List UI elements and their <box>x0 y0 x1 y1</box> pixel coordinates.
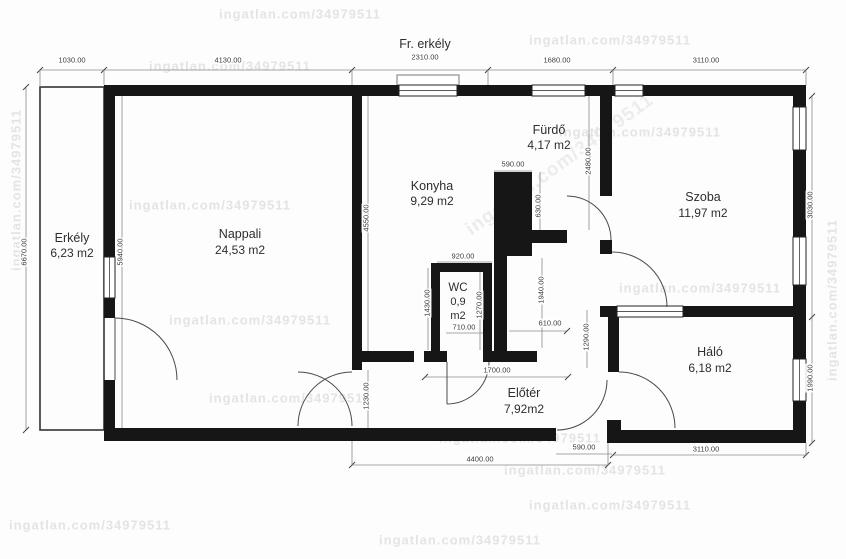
walls <box>104 85 806 443</box>
room-label-nappali: Nappali <box>219 227 261 241</box>
dim-bottom-3110: 3110.00 <box>692 445 721 454</box>
room-label-erkely: Erkély <box>55 231 90 245</box>
dim-mid-1940: 1940.00 <box>537 275 546 304</box>
dim-mid-610: 610.00 <box>538 319 563 328</box>
dim-furdo-590: 590.00 <box>501 160 526 169</box>
dim-mid-1290: 1290.00 <box>582 322 591 351</box>
floorplan-canvas <box>0 0 846 559</box>
dim-bottom-4400: 4400.00 <box>465 455 494 464</box>
room-label-wc: WC <box>448 281 467 295</box>
room-area-halo: 6,18 m2 <box>688 361 731 375</box>
dim-wc-1270: 1270.00 <box>475 290 484 319</box>
room-area-furdo: 4,17 m2 <box>527 138 570 152</box>
room-label-szoba: Szoba <box>685 190 720 204</box>
dimension-lines <box>23 67 815 468</box>
dim-top-1680: 1680.00 <box>542 56 571 65</box>
dim-eloter-1700: 1700.00 <box>482 366 511 375</box>
dim-entry-590: 590.00 <box>572 443 597 452</box>
dim-top-3110: 3110.00 <box>692 56 721 65</box>
dim-konyha-4550: 4550.00 <box>362 203 371 232</box>
dim-wc-920: 920.00 <box>451 252 476 261</box>
room-label-furdo: Fürdő <box>533 123 566 137</box>
room-label-fr-erkely: Fr. erkély <box>399 37 450 51</box>
dim-wc-710: 710.00 <box>452 323 477 332</box>
dim-right-3030: 3030.00 <box>806 190 815 219</box>
dim-top-1030: 1030.00 <box>57 56 86 65</box>
room-area-nappali: 24,53 m2 <box>215 243 265 257</box>
room-label-halo: Háló <box>697 345 723 359</box>
dim-furdo-630: 630.00 <box>534 194 543 219</box>
room-label-konyha: Konyha <box>411 179 453 193</box>
room-label-eloter: Előtér <box>508 386 541 400</box>
room-area-erkely: 6,23 m2 <box>50 246 93 260</box>
room-area-wc-2: m2 <box>450 309 465 323</box>
dim-top-2310: 2310.00 <box>410 53 439 62</box>
dim-furdo-2480: 2480.00 <box>584 146 593 175</box>
dim-right-1990: 1990.00 <box>806 363 815 392</box>
room-area-eloter: 7,92m2 <box>504 402 544 416</box>
dim-eloter-1230: 1230.00 <box>362 381 371 410</box>
dim-left-5940: 5940.00 <box>116 237 125 266</box>
room-area-szoba: 11,97 m2 <box>678 206 727 220</box>
dim-left-6670: 6670.00 <box>20 237 29 266</box>
dim-top-4130: 4130.00 <box>213 56 242 65</box>
dim-wc-1430: 1430.00 <box>423 288 432 317</box>
room-area-konyha: 9,29 m2 <box>410 194 453 208</box>
room-area-wc-1: 0,9 <box>450 295 465 309</box>
doors <box>115 196 675 430</box>
floorplan: ingatlan.com/34979511 ingatlan.com/34979… <box>0 0 846 559</box>
